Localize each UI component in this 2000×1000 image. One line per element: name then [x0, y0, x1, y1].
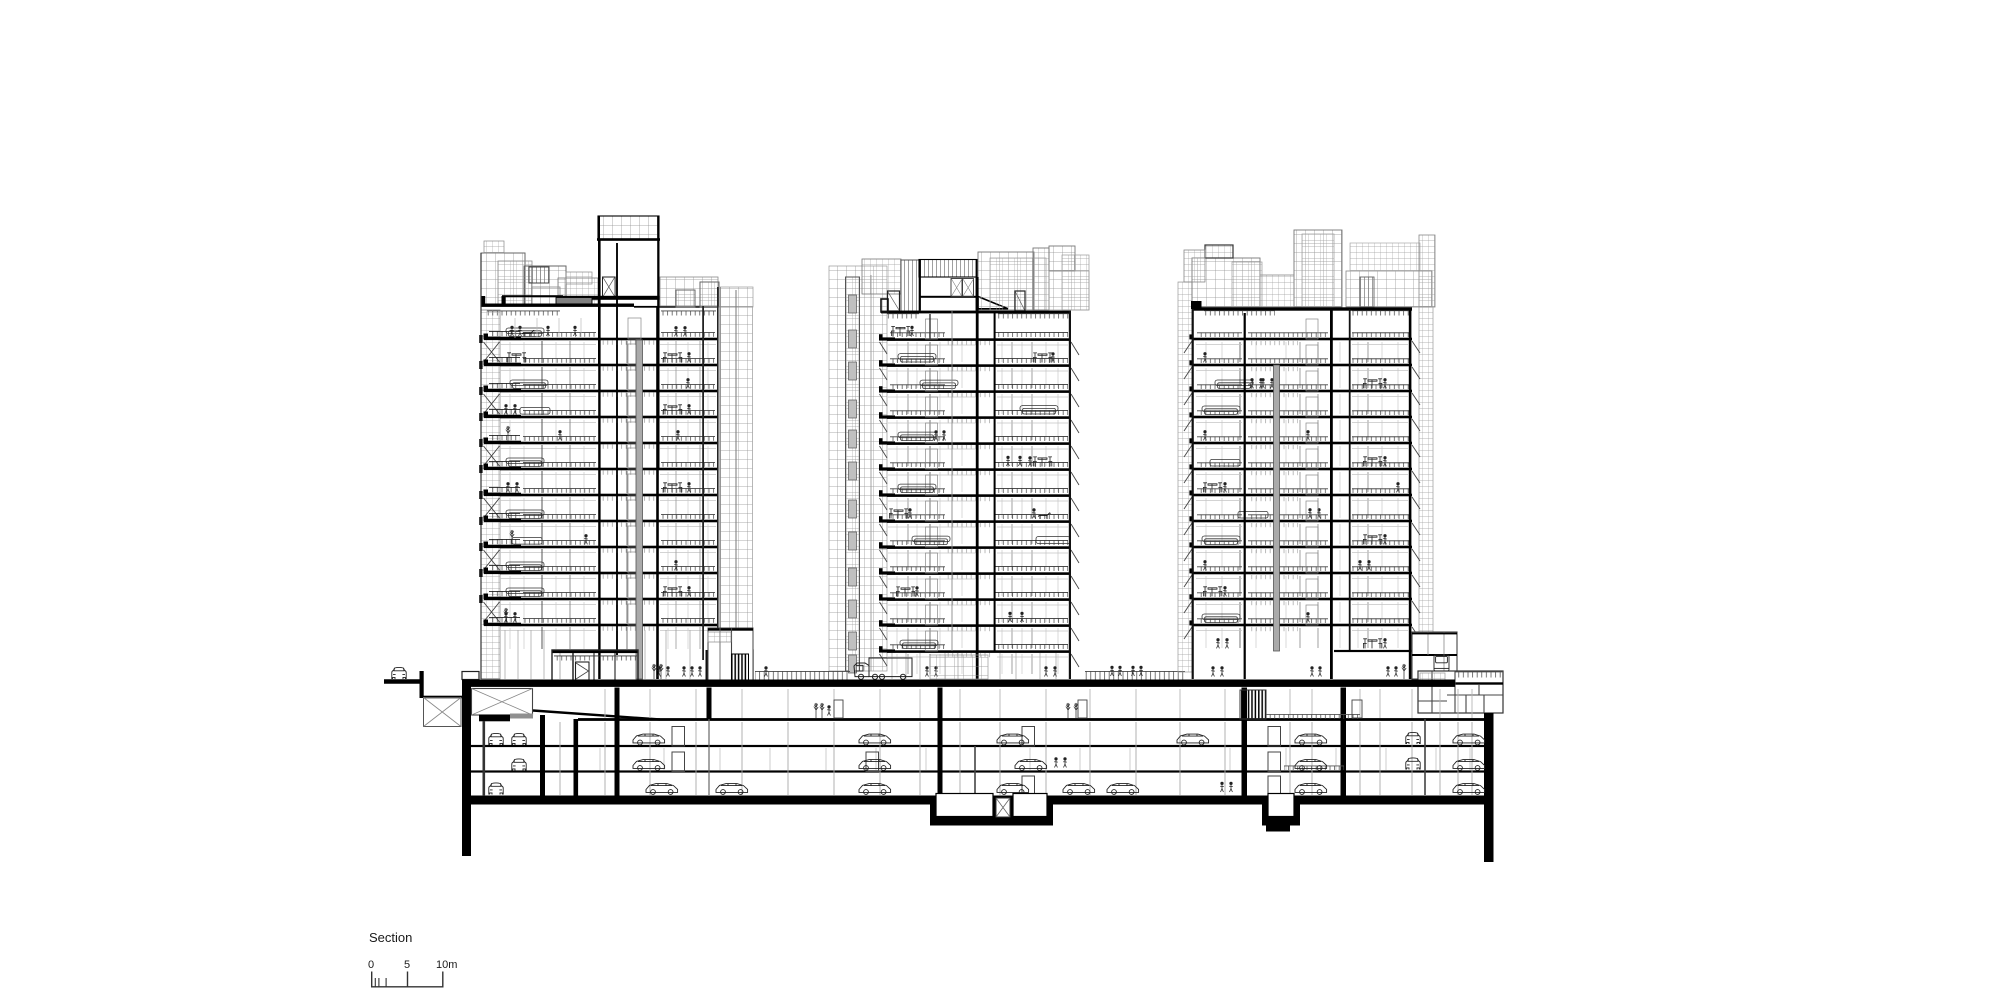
svg-text:0: 0: [368, 959, 374, 971]
svg-text:10m: 10m: [436, 959, 457, 971]
svg-text:5: 5: [404, 959, 410, 971]
svg-text:Section: Section: [369, 930, 412, 945]
